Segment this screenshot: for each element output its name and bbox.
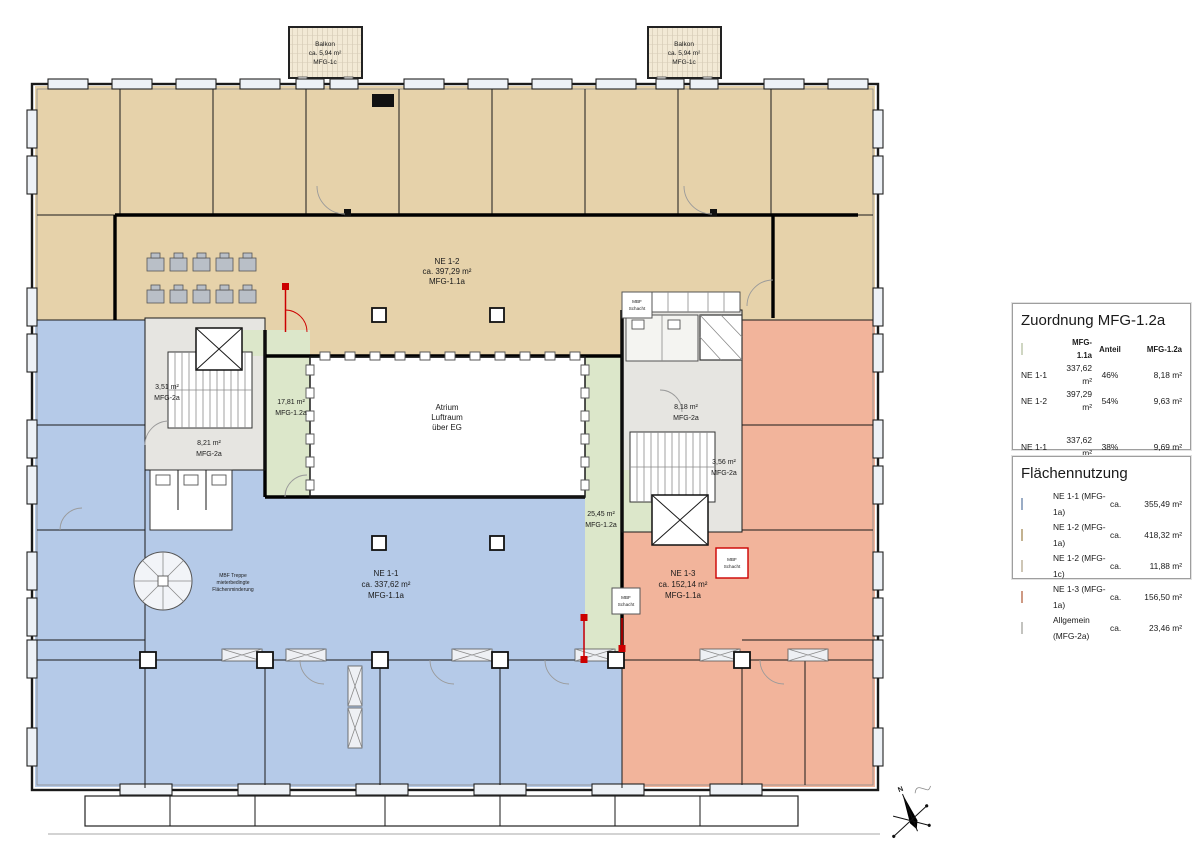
svg-text:MFG-1.2a: MFG-1.2a [275, 410, 307, 417]
shaft-label-2: MBF [727, 557, 737, 562]
svg-text:MFG-1.1a: MFG-1.1a [429, 277, 466, 286]
svg-text:ca. 397,29 m²: ca. 397,29 m² [423, 267, 472, 276]
svg-text:mieterbedingte: mieterbedingte [216, 580, 249, 586]
svg-text:MFG-1c: MFG-1c [313, 59, 337, 66]
svg-text:ca. 152,14 m²: ca. 152,14 m² [659, 580, 708, 589]
svg-text:über EG: über EG [432, 423, 462, 432]
legend-flaechennutzung-title: Flächennutzung [1021, 465, 1182, 482]
svg-text:MFG-2a: MFG-2a [196, 451, 222, 458]
usage-row-ne12a: NE 1-2 (MFG-1a) ca. 418,32 m² [1021, 520, 1182, 551]
svg-text:MFG-2a: MFG-2a [154, 395, 180, 402]
svg-text:MFG-2a: MFG-2a [711, 470, 737, 477]
ne11-area-label: NE 1-1 [374, 569, 399, 578]
usage-row-ne13: NE 1-3 (MFG-1a) ca. 156,50 m² [1021, 582, 1182, 613]
room-351-label: 3,51 m² [155, 384, 179, 391]
svg-text:Schacht: Schacht [618, 602, 635, 607]
svg-text:MFG-2a: MFG-2a [673, 415, 699, 422]
svg-text:MFG-1.1a: MFG-1.1a [368, 591, 405, 600]
row-name: NE 1-1 [1021, 441, 1057, 454]
area-fills [35, 86, 875, 787]
room-2545-label: 25,45 m² [587, 511, 615, 518]
terrace-strip [48, 796, 880, 834]
spiral-stair [134, 552, 192, 610]
ne13-area-label: NE 1-3 [671, 569, 696, 578]
room-818-label: 8,18 m² [674, 404, 698, 411]
legend-zuordnung: Zuordnung MFG-1.2a MFG-1.1a Anteil MFG-1… [1012, 303, 1191, 450]
svg-text:MFG-1.1a: MFG-1.1a [665, 591, 702, 600]
col-header-area: MFG-1.1a [1057, 336, 1092, 362]
ne13-swatch [1021, 591, 1023, 603]
svg-text:Flächenminderung: Flächenminderung [212, 587, 254, 593]
svg-text:Schacht: Schacht [629, 306, 646, 311]
legend-zuordnung-title: Zuordnung MFG-1.2a [1021, 312, 1182, 329]
svg-text:Schacht: Schacht [724, 564, 741, 569]
row-name: NE 1-2 [1021, 395, 1057, 408]
svg-text:ca. 337,62 m²: ca. 337,62 m² [362, 580, 411, 589]
ne12-area-label: NE 1-2 [435, 257, 460, 266]
floor-plan-drawing: Balkon ca. 5,94 m² MFG-1c Balkon ca. 5,9… [0, 0, 1000, 844]
mfg12a-swatch [1021, 343, 1023, 355]
ne12c-swatch [1021, 560, 1023, 572]
spiral-stair-note: MBF Treppe [219, 573, 247, 579]
shaft-label-1: MBF [632, 299, 642, 304]
compass-north-label: N [897, 786, 904, 794]
ne11-swatch [1021, 498, 1023, 510]
svg-text:ca. 5,94 m²: ca. 5,94 m² [309, 50, 342, 57]
row-name: NE 1-1 [1021, 369, 1057, 382]
legend-flaechennutzung: Flächennutzung NE 1-1 (MFG-1a) ca. 355,4… [1012, 456, 1191, 579]
usage-row-ne12c: NE 1-2 (MFG-1c) ca. 11,88 m² [1021, 551, 1182, 582]
svg-text:ca. 5,94 m²: ca. 5,94 m² [668, 50, 701, 57]
svg-text:MFG-1.2a: MFG-1.2a [585, 522, 617, 529]
usage-row-ne11: NE 1-1 (MFG-1a) ca. 355,49 m² [1021, 489, 1182, 520]
usage-row-allgemein: Allgemein (MFG-2a) ca. 23,46 m² [1021, 613, 1182, 644]
shaft-label-3: MBF [621, 595, 631, 600]
allgemein-swatch [1021, 622, 1023, 634]
col-header-target: MFG-1.2a [1128, 343, 1182, 356]
room-821-label: 8,21 m² [197, 440, 221, 447]
balcony-ne-label: Balkon [674, 41, 694, 48]
compass-rose-icon: N [876, 776, 945, 842]
ne12-swatch [1021, 529, 1023, 541]
svg-text:Luftraum: Luftraum [431, 413, 463, 422]
room-356-label: 3,56 m² [712, 459, 736, 466]
balcony-nw-label: Balkon [315, 41, 335, 48]
atrium-label: Atrium [435, 403, 458, 412]
floorplan-page: Balkon ca. 5,94 m² MFG-1c Balkon ca. 5,9… [0, 0, 1200, 844]
svg-text:MFG-1c: MFG-1c [672, 59, 696, 66]
col-header-share: Anteil [1092, 343, 1128, 356]
room-1781-label: 17,81 m² [277, 399, 305, 406]
